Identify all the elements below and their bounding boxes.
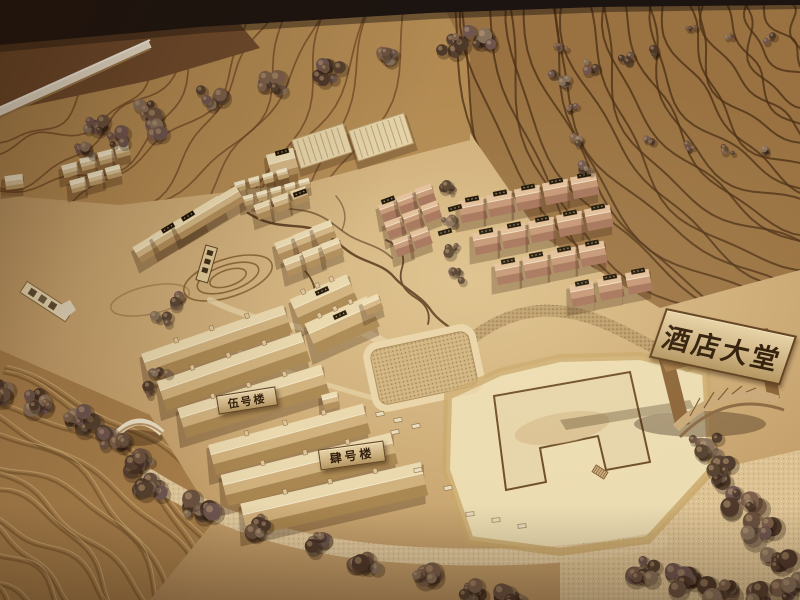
model-photo: 酒店大堂 伍号楼 肆号楼 [0, 0, 800, 600]
model-scene [0, 0, 800, 600]
standing-sign [196, 245, 217, 283]
building-4-sign-text: 肆号楼 [329, 444, 376, 467]
